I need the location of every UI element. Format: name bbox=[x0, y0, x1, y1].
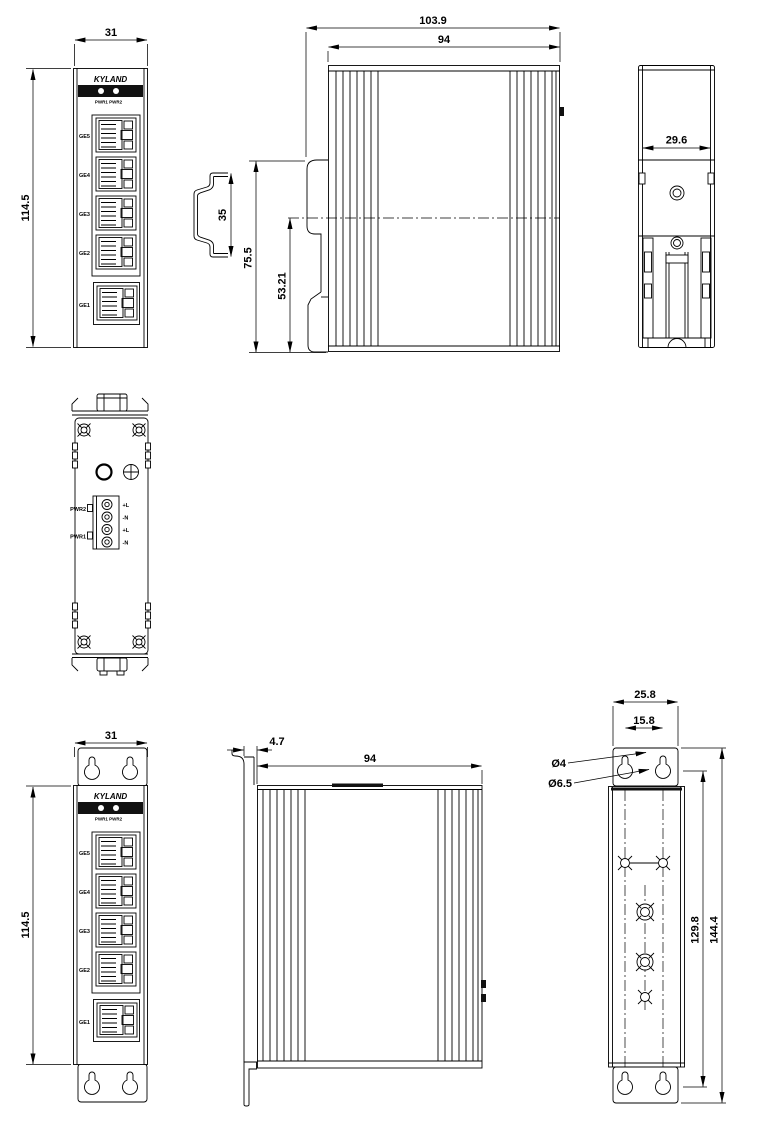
side-connector-tab bbox=[481, 980, 486, 988]
ground-icon bbox=[124, 465, 139, 480]
plate-offset-label: 4.7 bbox=[269, 736, 284, 748]
port-label-ge2: GE2 bbox=[79, 251, 90, 257]
wall-front-height-label: 114.5 bbox=[20, 912, 32, 939]
port-label-ge4: GE4 bbox=[79, 890, 91, 896]
screw-icon bbox=[618, 856, 632, 870]
dimension-drawing: 31 114.5 KYLAND PWR1 PWR2 GE5 GE4 GE3 GE… bbox=[0, 0, 760, 1132]
boss-screw-icon bbox=[636, 903, 654, 921]
wall-side-depth-label: 94 bbox=[364, 753, 377, 765]
port-label-ge2: GE2 bbox=[79, 968, 90, 974]
port-label-ge1: GE1 bbox=[79, 1020, 90, 1026]
wall-front-width-label: 31 bbox=[105, 730, 117, 742]
side-connector-tab bbox=[560, 107, 565, 116]
top-view-power: PWR2 PWR1 +L -N +L -N bbox=[70, 394, 150, 675]
boss-screw-icon bbox=[636, 953, 654, 971]
edge-notch bbox=[708, 173, 714, 184]
port-label-ge3: GE3 bbox=[79, 929, 90, 935]
mechanical-drawing-page: 31 114.5 KYLAND PWR1 PWR2 GE5 GE4 GE3 GE… bbox=[0, 0, 760, 1132]
port-label-ge1: GE1 bbox=[79, 303, 90, 309]
pwr1-bracket bbox=[88, 532, 93, 539]
brand-logo: KYLAND bbox=[94, 75, 128, 84]
pwr1-label: PWR1 bbox=[70, 535, 86, 541]
side-connector-tab bbox=[481, 994, 486, 1002]
screw-icon bbox=[656, 856, 670, 870]
corner-screw-icon bbox=[133, 636, 146, 649]
rail-height-label: 35 bbox=[217, 209, 229, 221]
pin-label-3: +L bbox=[123, 528, 130, 534]
screw-icon bbox=[638, 990, 652, 1004]
pin-label-4: -N bbox=[123, 541, 129, 547]
rear-width-label: 29.6 bbox=[666, 135, 687, 147]
rail-offset-label: 53.21 bbox=[277, 272, 289, 300]
side-depth-total-label: 103.9 bbox=[419, 15, 447, 27]
plate-width-label: 25.8 bbox=[634, 689, 655, 701]
corner-screw-icon bbox=[133, 424, 146, 437]
brand-logo: KYLAND bbox=[94, 792, 128, 801]
pwr2-bracket bbox=[88, 505, 93, 512]
rear-screw-lower bbox=[671, 237, 683, 249]
front-width-label: 31 bbox=[105, 27, 117, 39]
led-labels: PWR1 PWR2 bbox=[95, 817, 123, 822]
pin-label-2: -N bbox=[123, 516, 129, 522]
side-depth-body-label: 94 bbox=[438, 34, 451, 46]
pin-label-1: +L bbox=[123, 503, 130, 509]
top-label-bar bbox=[611, 788, 682, 791]
front-height-label: 114.5 bbox=[20, 195, 32, 222]
total-height-label: 144.4 bbox=[709, 915, 721, 943]
clip-height-label: 75.5 bbox=[243, 247, 255, 268]
slot-dia-label: Ø4 bbox=[551, 758, 567, 770]
pwr2-label: PWR2 bbox=[70, 507, 86, 513]
top-label-bar bbox=[332, 784, 383, 788]
port-label-ge5: GE5 bbox=[79, 851, 90, 857]
hole-spacing-label: 15.8 bbox=[633, 715, 654, 727]
port-label-ge3: GE3 bbox=[79, 212, 90, 218]
port-label-ge4: GE4 bbox=[79, 173, 91, 179]
hole-dia-label: Ø6.5 bbox=[548, 778, 572, 790]
led-labels: PWR1 PWR2 bbox=[95, 100, 123, 105]
edge-notch bbox=[639, 173, 645, 184]
corner-screw-icon bbox=[78, 424, 91, 437]
corner-screw-icon bbox=[78, 636, 91, 649]
hole-span-label: 129.8 bbox=[690, 916, 702, 944]
port-label-ge5: GE5 bbox=[79, 134, 90, 140]
rear-screw-upper bbox=[670, 186, 684, 200]
